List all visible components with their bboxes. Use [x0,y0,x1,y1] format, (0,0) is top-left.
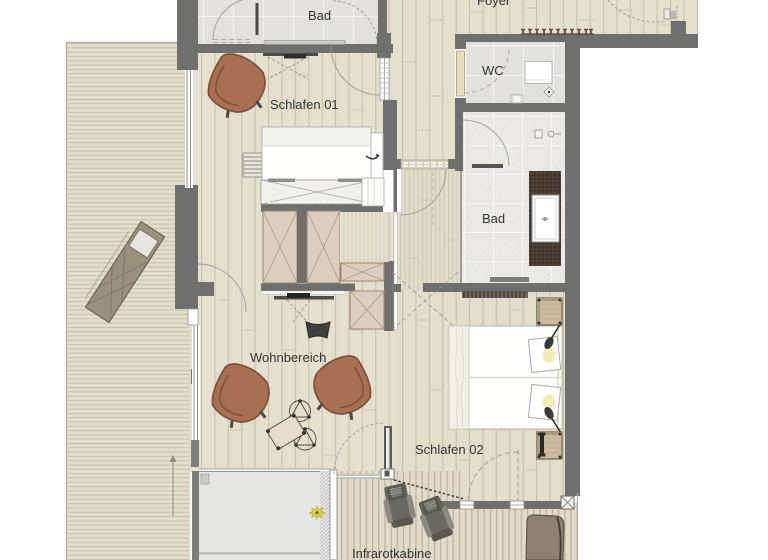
svg-text:Bad: Bad [482,211,505,226]
svg-text:Foyer: Foyer [477,0,511,8]
svg-text:Schlafen 02: Schlafen 02 [415,442,484,457]
svg-text:Wohnbereich: Wohnbereich [250,350,326,365]
svg-text:Schlafen 01: Schlafen 01 [270,97,339,112]
svg-text:Infrarotkabine: Infrarotkabine [352,546,432,560]
svg-text:WC: WC [482,63,504,78]
svg-text:Bad: Bad [308,8,331,23]
